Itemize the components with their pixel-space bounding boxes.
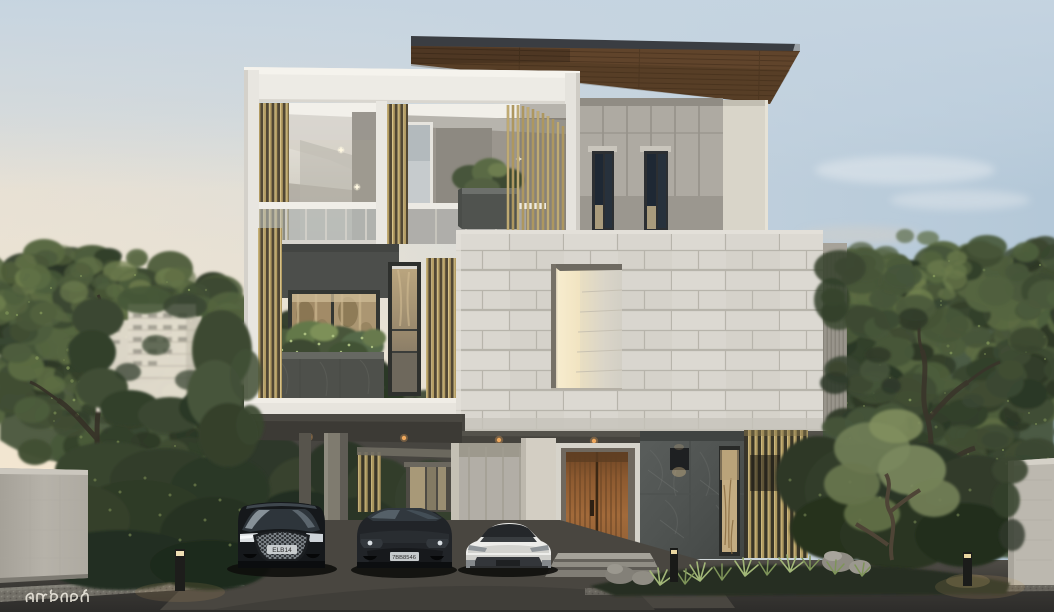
svg-text:ELB14: ELB14	[272, 547, 292, 554]
svg-text:7BB8546: 7BB8546	[392, 555, 416, 561]
